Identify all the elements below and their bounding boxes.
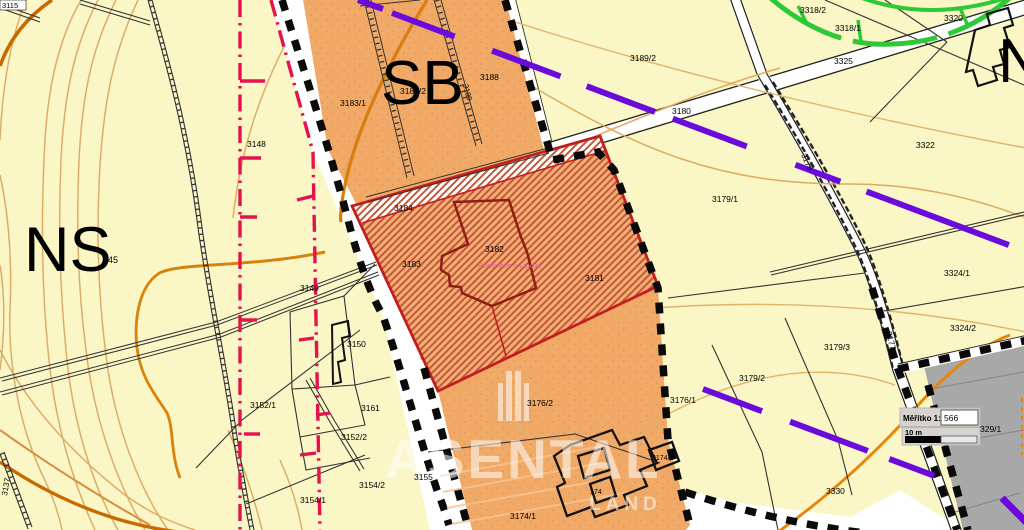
svg-text:3179/1: 3179/1 <box>712 194 738 204</box>
svg-text:3318/2: 3318/2 <box>800 5 826 15</box>
svg-text:3322: 3322 <box>916 140 935 150</box>
svg-text:3188: 3188 <box>480 72 499 82</box>
svg-text:NS: NS <box>24 215 112 285</box>
svg-text:3176/1: 3176/1 <box>670 395 696 405</box>
svg-text:3320: 3320 <box>944 13 963 23</box>
svg-text:3325: 3325 <box>834 56 853 66</box>
svg-text:3181: 3181 <box>585 273 604 283</box>
svg-text:3174/1: 3174/1 <box>510 511 536 521</box>
svg-text:3183: 3183 <box>402 259 421 269</box>
svg-text:3189/2: 3189/2 <box>630 53 656 63</box>
svg-text:3152/1: 3152/1 <box>250 400 276 410</box>
svg-text:Bordovice u Lipové: Bordovice u Lipové <box>478 261 542 270</box>
svg-text:3179/3: 3179/3 <box>824 342 850 352</box>
svg-text:3174/2: 3174/2 <box>652 455 674 462</box>
svg-text:174: 174 <box>590 489 602 496</box>
svg-text:3148: 3148 <box>247 139 266 149</box>
svg-text:3155: 3155 <box>414 472 433 482</box>
svg-text:3179/2: 3179/2 <box>739 373 765 383</box>
svg-text:N: N <box>998 27 1024 96</box>
svg-text:3154/2: 3154/2 <box>359 480 385 490</box>
svg-text:3182: 3182 <box>485 244 504 254</box>
svg-text:10 m: 10 m <box>905 428 922 437</box>
svg-text:3184: 3184 <box>394 203 413 213</box>
svg-text:329/1: 329/1 <box>980 424 1002 434</box>
svg-text:45: 45 <box>108 255 118 265</box>
svg-text:LAND: LAND <box>589 494 662 515</box>
svg-text:3324/1: 3324/1 <box>944 268 970 278</box>
svg-text:3324/2: 3324/2 <box>950 323 976 333</box>
svg-text:3183/1: 3183/1 <box>340 98 366 108</box>
svg-text:3150: 3150 <box>347 339 366 349</box>
svg-text:3183/2: 3183/2 <box>400 86 426 96</box>
svg-text:3115: 3115 <box>2 1 18 10</box>
svg-text:Měřítko 1:: Měřítko 1: <box>903 414 941 423</box>
svg-text:3154/1: 3154/1 <box>300 495 326 505</box>
svg-text:3152/2: 3152/2 <box>341 432 367 442</box>
svg-text:566: 566 <box>944 413 958 423</box>
svg-text:3176/2: 3176/2 <box>527 398 553 408</box>
svg-text:3318/1: 3318/1 <box>835 23 861 33</box>
svg-text:3180: 3180 <box>672 106 691 116</box>
svg-text:SB: SB <box>381 49 464 118</box>
svg-text:3149: 3149 <box>300 283 319 293</box>
svg-text:3161: 3161 <box>361 403 380 413</box>
svg-text:3330: 3330 <box>826 486 845 496</box>
